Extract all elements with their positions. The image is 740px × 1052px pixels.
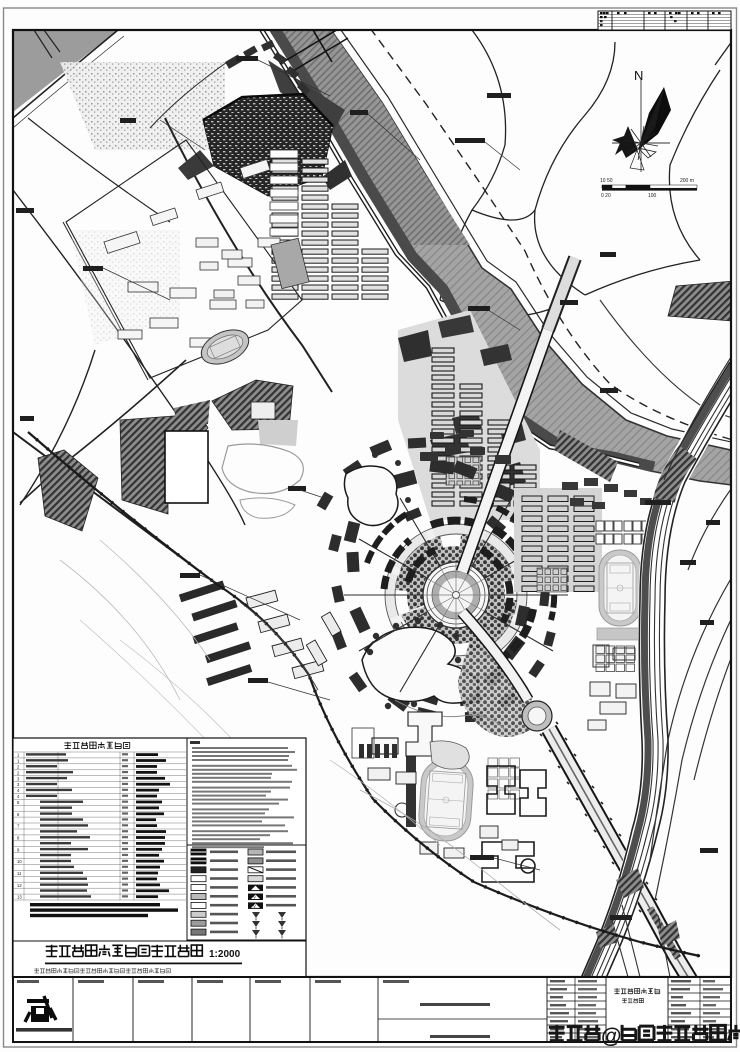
svg-text:12: 12 (17, 883, 22, 888)
svg-text:V: V (253, 895, 256, 900)
svg-text:V: V (253, 904, 256, 909)
svg-text:@: @ (601, 1025, 621, 1048)
svg-text:13: 13 (17, 895, 22, 900)
svg-text:1:2000: 1:2000 (209, 949, 241, 960)
svg-text:N: N (634, 68, 643, 83)
svg-text:10 50: 10 50 (600, 178, 613, 184)
svg-text:200 m: 200 m (680, 178, 694, 184)
svg-text:100: 100 (648, 193, 657, 199)
svg-text:10: 10 (17, 859, 22, 864)
svg-text:11: 11 (17, 871, 22, 876)
svg-text:0 20: 0 20 (601, 193, 611, 199)
